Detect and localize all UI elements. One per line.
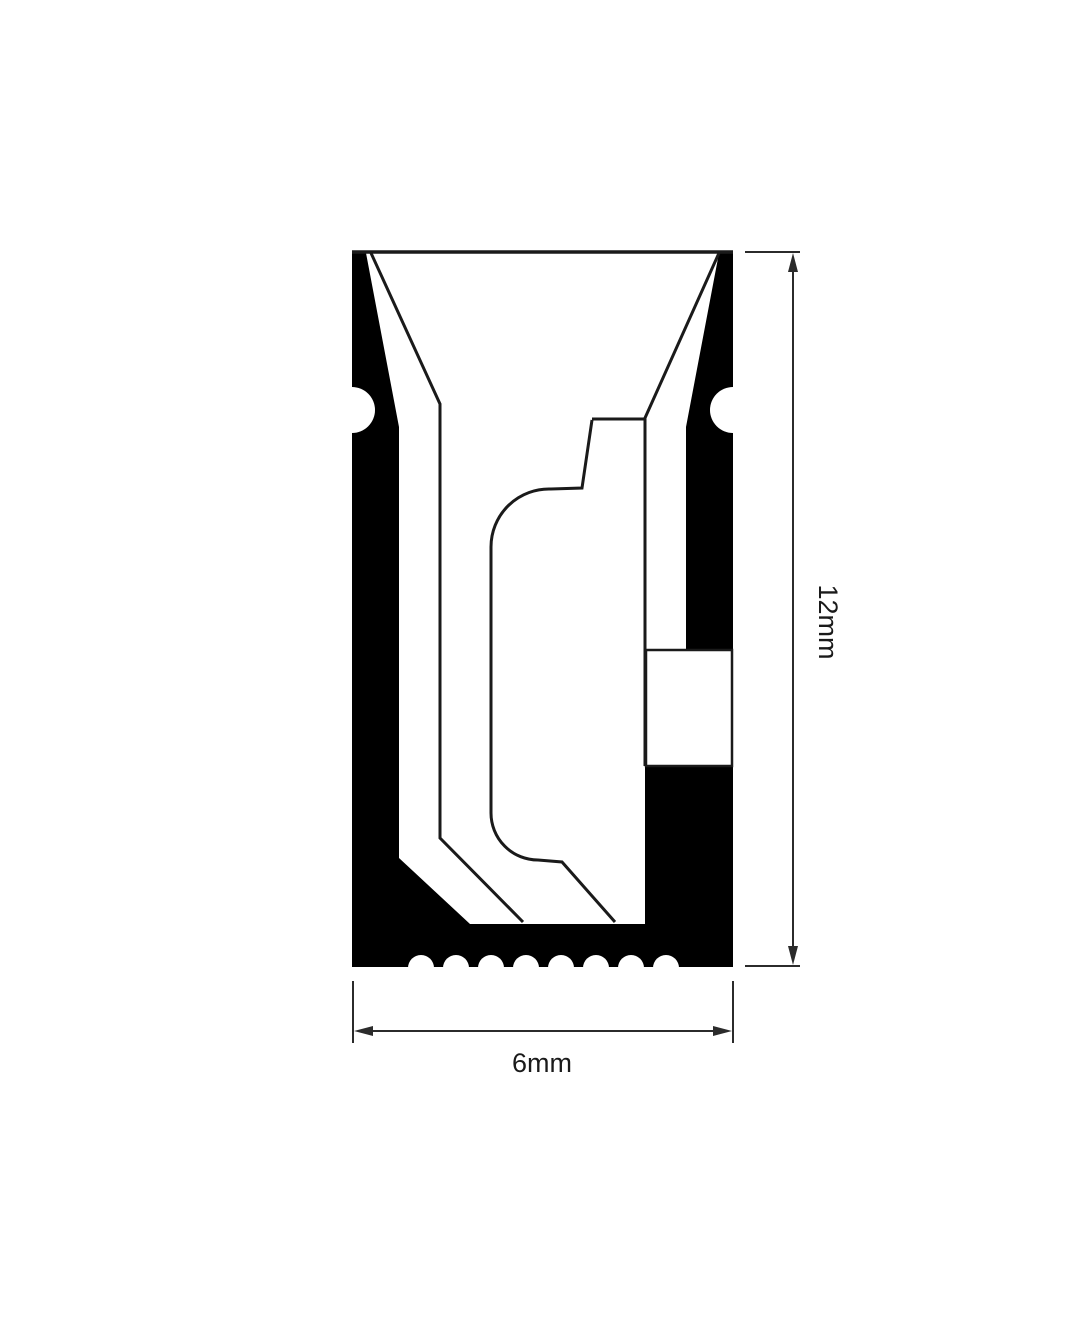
grip-ridge [618, 955, 644, 981]
width-dimension [353, 981, 733, 1043]
arrow-left-icon [354, 1026, 373, 1036]
grip-ridge [513, 955, 539, 981]
profile-cross-section-drawing: 12mm 6mm [0, 0, 1065, 1331]
grip-ridge [583, 955, 609, 981]
grip-ridge [443, 955, 469, 981]
right-mounting-notch [710, 387, 756, 433]
grip-ridge [548, 955, 574, 981]
left-mounting-notch [329, 387, 375, 433]
drawing-canvas: 12mm 6mm [0, 0, 1065, 1331]
height-dimension [745, 252, 800, 966]
arrow-down-icon [788, 946, 798, 965]
grip-ridge [653, 955, 679, 981]
width-dimension-label: 6mm [512, 1048, 572, 1078]
grip-ridge [478, 955, 504, 981]
arrow-right-icon [713, 1026, 732, 1036]
grip-ridge [408, 955, 434, 981]
height-dimension-label: 12mm [813, 584, 843, 659]
arrow-up-icon [788, 253, 798, 272]
